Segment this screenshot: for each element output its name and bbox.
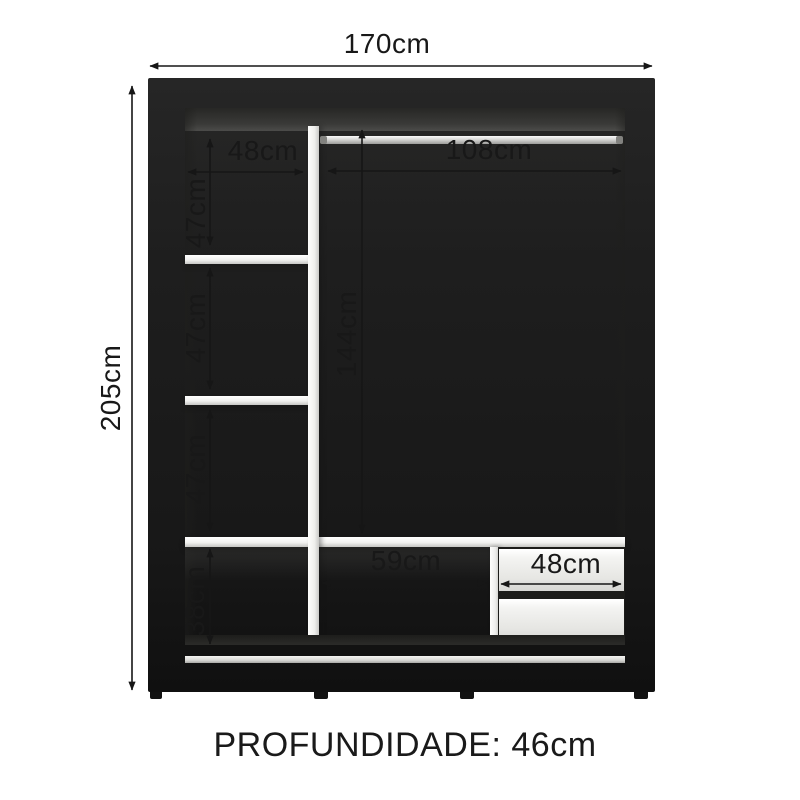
interior-floor — [185, 635, 625, 645]
wardrobe-foot-1 — [150, 692, 162, 699]
dim-drawer-width-label: 48cm — [531, 550, 601, 578]
dim-left-section3-label: 47cm — [182, 434, 210, 504]
wardrobe-foot-3 — [460, 692, 474, 699]
sliding-door-track — [185, 656, 625, 663]
wardrobe-foot-2 — [314, 692, 328, 699]
dim-rod-width-label: 108cm — [446, 136, 533, 164]
depth-caption: PROFUNDIDADE: 46cm — [213, 728, 596, 762]
dim-overall-height-label: 205cm — [97, 345, 125, 432]
dim-left-bottom-label: 38cm — [181, 566, 209, 636]
dim-bottom-shelf-width-label: 59cm — [371, 547, 441, 575]
dim-left-column-width-label: 48cm — [228, 137, 298, 165]
center-divider-panel — [308, 126, 319, 638]
wardrobe-dimension-diagram: 170cm 205cm 48cm 47cm 47cm 47cm 38cm 108… — [0, 0, 800, 800]
dim-left-section2-label: 47cm — [182, 293, 210, 363]
dim-hanging-height-label: 144cm — [333, 291, 361, 378]
interior-ceiling-shadow — [185, 108, 625, 131]
left-shelf-2 — [185, 396, 308, 405]
dim-overall-width-label: 170cm — [344, 30, 431, 58]
dim-left-section1-label: 47cm — [182, 178, 210, 248]
rod-bracket-right — [616, 136, 623, 144]
wardrobe-frame — [148, 78, 655, 692]
left-shelf-1 — [185, 255, 308, 264]
wardrobe-foot-4 — [634, 692, 648, 699]
rod-bracket-left — [320, 136, 327, 144]
